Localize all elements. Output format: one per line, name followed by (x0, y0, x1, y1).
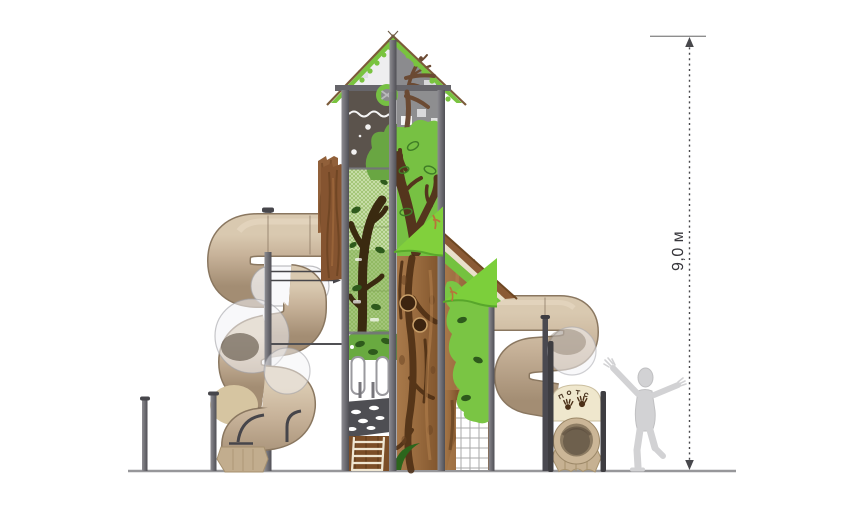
svg-text:9,0 м: 9,0 м (670, 231, 687, 271)
